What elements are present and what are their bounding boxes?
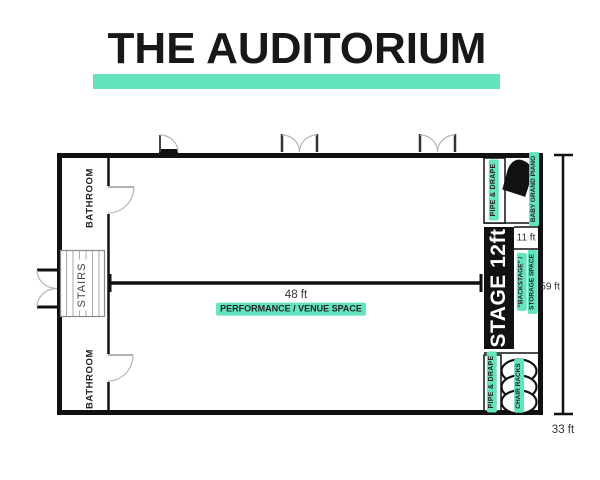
bathroom-top-label: BATHROOM [85,168,96,228]
stage-label: STAGE 12ft [487,229,511,348]
pipe-drape-top-label: PIPE & DRAPE [489,160,499,221]
overall-bottom-dimension: 33 ft [552,424,574,436]
baby-grand-piano-label: BABY GRAND PIANO [529,152,539,226]
bathroom-bottom-door [108,355,133,381]
bathroom-bottom-label: BATHROOM [85,349,96,409]
backstage-line2: STORAGE SPACE [528,250,538,314]
backstage-storage-label: "BACKSTAGE" / STORAGE SPACE [517,250,538,314]
left-double-door [37,270,57,307]
top-double-door-right [420,134,455,152]
auditorium-floor-plan: THE AUDITORIUM [0,0,600,480]
chair-racks-label: CHAIR RACKS [514,359,524,413]
top-single-door [159,135,178,154]
venue-width-dimension: 48 ft [285,289,307,301]
performance-space-label: PERFORMANCE / VENUE SPACE [216,303,366,316]
top-double-door-left [282,134,317,152]
bathroom-top-door [108,187,134,213]
backstage-depth-dimension: 11 ft [517,233,536,244]
pipe-drape-bottom-label: PIPE & DRAPE [487,352,497,413]
backstage-line1: "BACKSTAGE" / [517,253,527,311]
overall-height-dimension: 59 ft [540,282,559,293]
stairs-label: STAIRS [76,260,88,311]
